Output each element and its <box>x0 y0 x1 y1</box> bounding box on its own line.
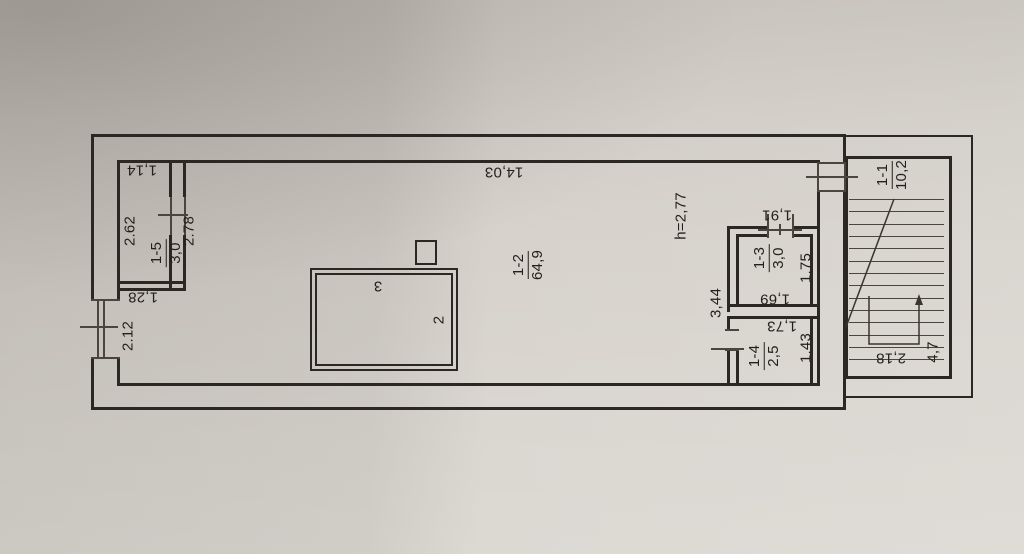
room-area: 2,5 <box>765 345 782 366</box>
room15-door-jamb-1 <box>170 197 172 235</box>
dim-room15-door-offset: 2.78 <box>182 216 197 246</box>
dim-room15-width: 1,14 <box>127 163 157 178</box>
stair-door-dim-line <box>806 176 858 178</box>
photographed-floor-plan: 1-5 3,0 1-2 64,9 1-3 3,0 1-4 2,5 1-1 10,… <box>0 0 1024 554</box>
room13-door-jamb-2 <box>792 214 794 238</box>
room13-left-wall-outer <box>727 226 730 312</box>
room14-door-cap-top <box>725 329 739 331</box>
room-number: 1-1 <box>875 161 893 189</box>
wall-bottom-outer <box>91 407 846 410</box>
wall-right-inner <box>817 191 820 386</box>
room-label-1-3: 1-3 3,0 <box>752 244 787 272</box>
dim-total-width: 14,03 <box>485 165 524 180</box>
room15-bottom-wall-a <box>117 281 186 284</box>
room13-top-wall-inner-left <box>736 234 767 237</box>
mark-2: 2 <box>432 316 447 325</box>
room-label-1-5: 1-5 3,0 <box>149 239 184 267</box>
room14-left-wall-lower <box>727 350 730 386</box>
window-dim-extension <box>80 326 118 328</box>
dim-mid-span: 3,44 <box>709 288 724 318</box>
stair-door-cap-top <box>817 162 846 164</box>
dim-room13-door: 1,91 <box>762 208 792 223</box>
room-label-1-4: 1-4 2,5 <box>747 342 782 370</box>
room14-left-wall-upper <box>727 316 730 330</box>
wall-left-inner-lower <box>117 358 120 386</box>
room-number: 1-4 <box>747 342 765 370</box>
window-cap-bottom <box>91 357 120 359</box>
room-number: 1-5 <box>149 239 167 267</box>
floor-plan-drawing: 1-5 3,0 1-2 64,9 1-3 3,0 1-4 2,5 1-1 10,… <box>0 0 1024 554</box>
room-number: 1-3 <box>752 244 770 272</box>
dim-room14-depth: 1.43 <box>799 333 814 363</box>
ceiling-height-note: h=2,77 <box>674 192 689 240</box>
wall-left-outer-lower <box>91 358 94 410</box>
room-label-1-2: 1-2 64,9 <box>511 250 546 280</box>
stair-direction-arrow <box>915 294 923 305</box>
dim-room14-width: 1,73 <box>767 319 797 334</box>
stair-door-cap-bottom <box>817 190 846 192</box>
duct-square <box>415 240 437 265</box>
wall-left-outer-upper <box>91 134 94 301</box>
dim-stair-length: 4,7 <box>926 341 941 362</box>
room-area: 64,9 <box>529 250 546 280</box>
room13-top-wall-inner-right <box>793 234 810 237</box>
room15-right-wall-upper-a <box>169 160 172 197</box>
room14-dim-extension <box>711 348 744 350</box>
room-area: 3,0 <box>770 247 787 268</box>
dim-room13-depth: 1.75 <box>799 253 814 283</box>
window-pane-line-1 <box>97 300 99 359</box>
room-area: 10,2 <box>893 160 910 190</box>
dim-room15-length: 2.62 <box>123 216 138 246</box>
dim-room13-width: 1,69 <box>760 292 790 307</box>
wall-left-inner-upper <box>117 160 120 301</box>
wall-bottom-inner <box>117 383 820 386</box>
room13-left-wall-inner <box>736 234 739 304</box>
window-pane-line-2 <box>103 300 105 359</box>
room14-left-wall-inner <box>736 350 739 383</box>
dim-pier-below-room15: 1,28 <box>128 290 158 305</box>
dim-stair-width: 2,18 <box>876 351 906 366</box>
wall-top-outer <box>91 134 846 137</box>
room-label-1-1: 1-1 10,2 <box>875 160 910 190</box>
room-number: 1-2 <box>511 251 529 279</box>
dim-left-window: 2.12 <box>121 321 136 351</box>
room15-right-wall-upper-b <box>183 160 186 197</box>
room13-door-dim-tick <box>779 224 781 235</box>
window-cap-top <box>91 299 120 301</box>
mark-3: 3 <box>374 279 383 294</box>
wall-top-inner <box>117 160 820 163</box>
